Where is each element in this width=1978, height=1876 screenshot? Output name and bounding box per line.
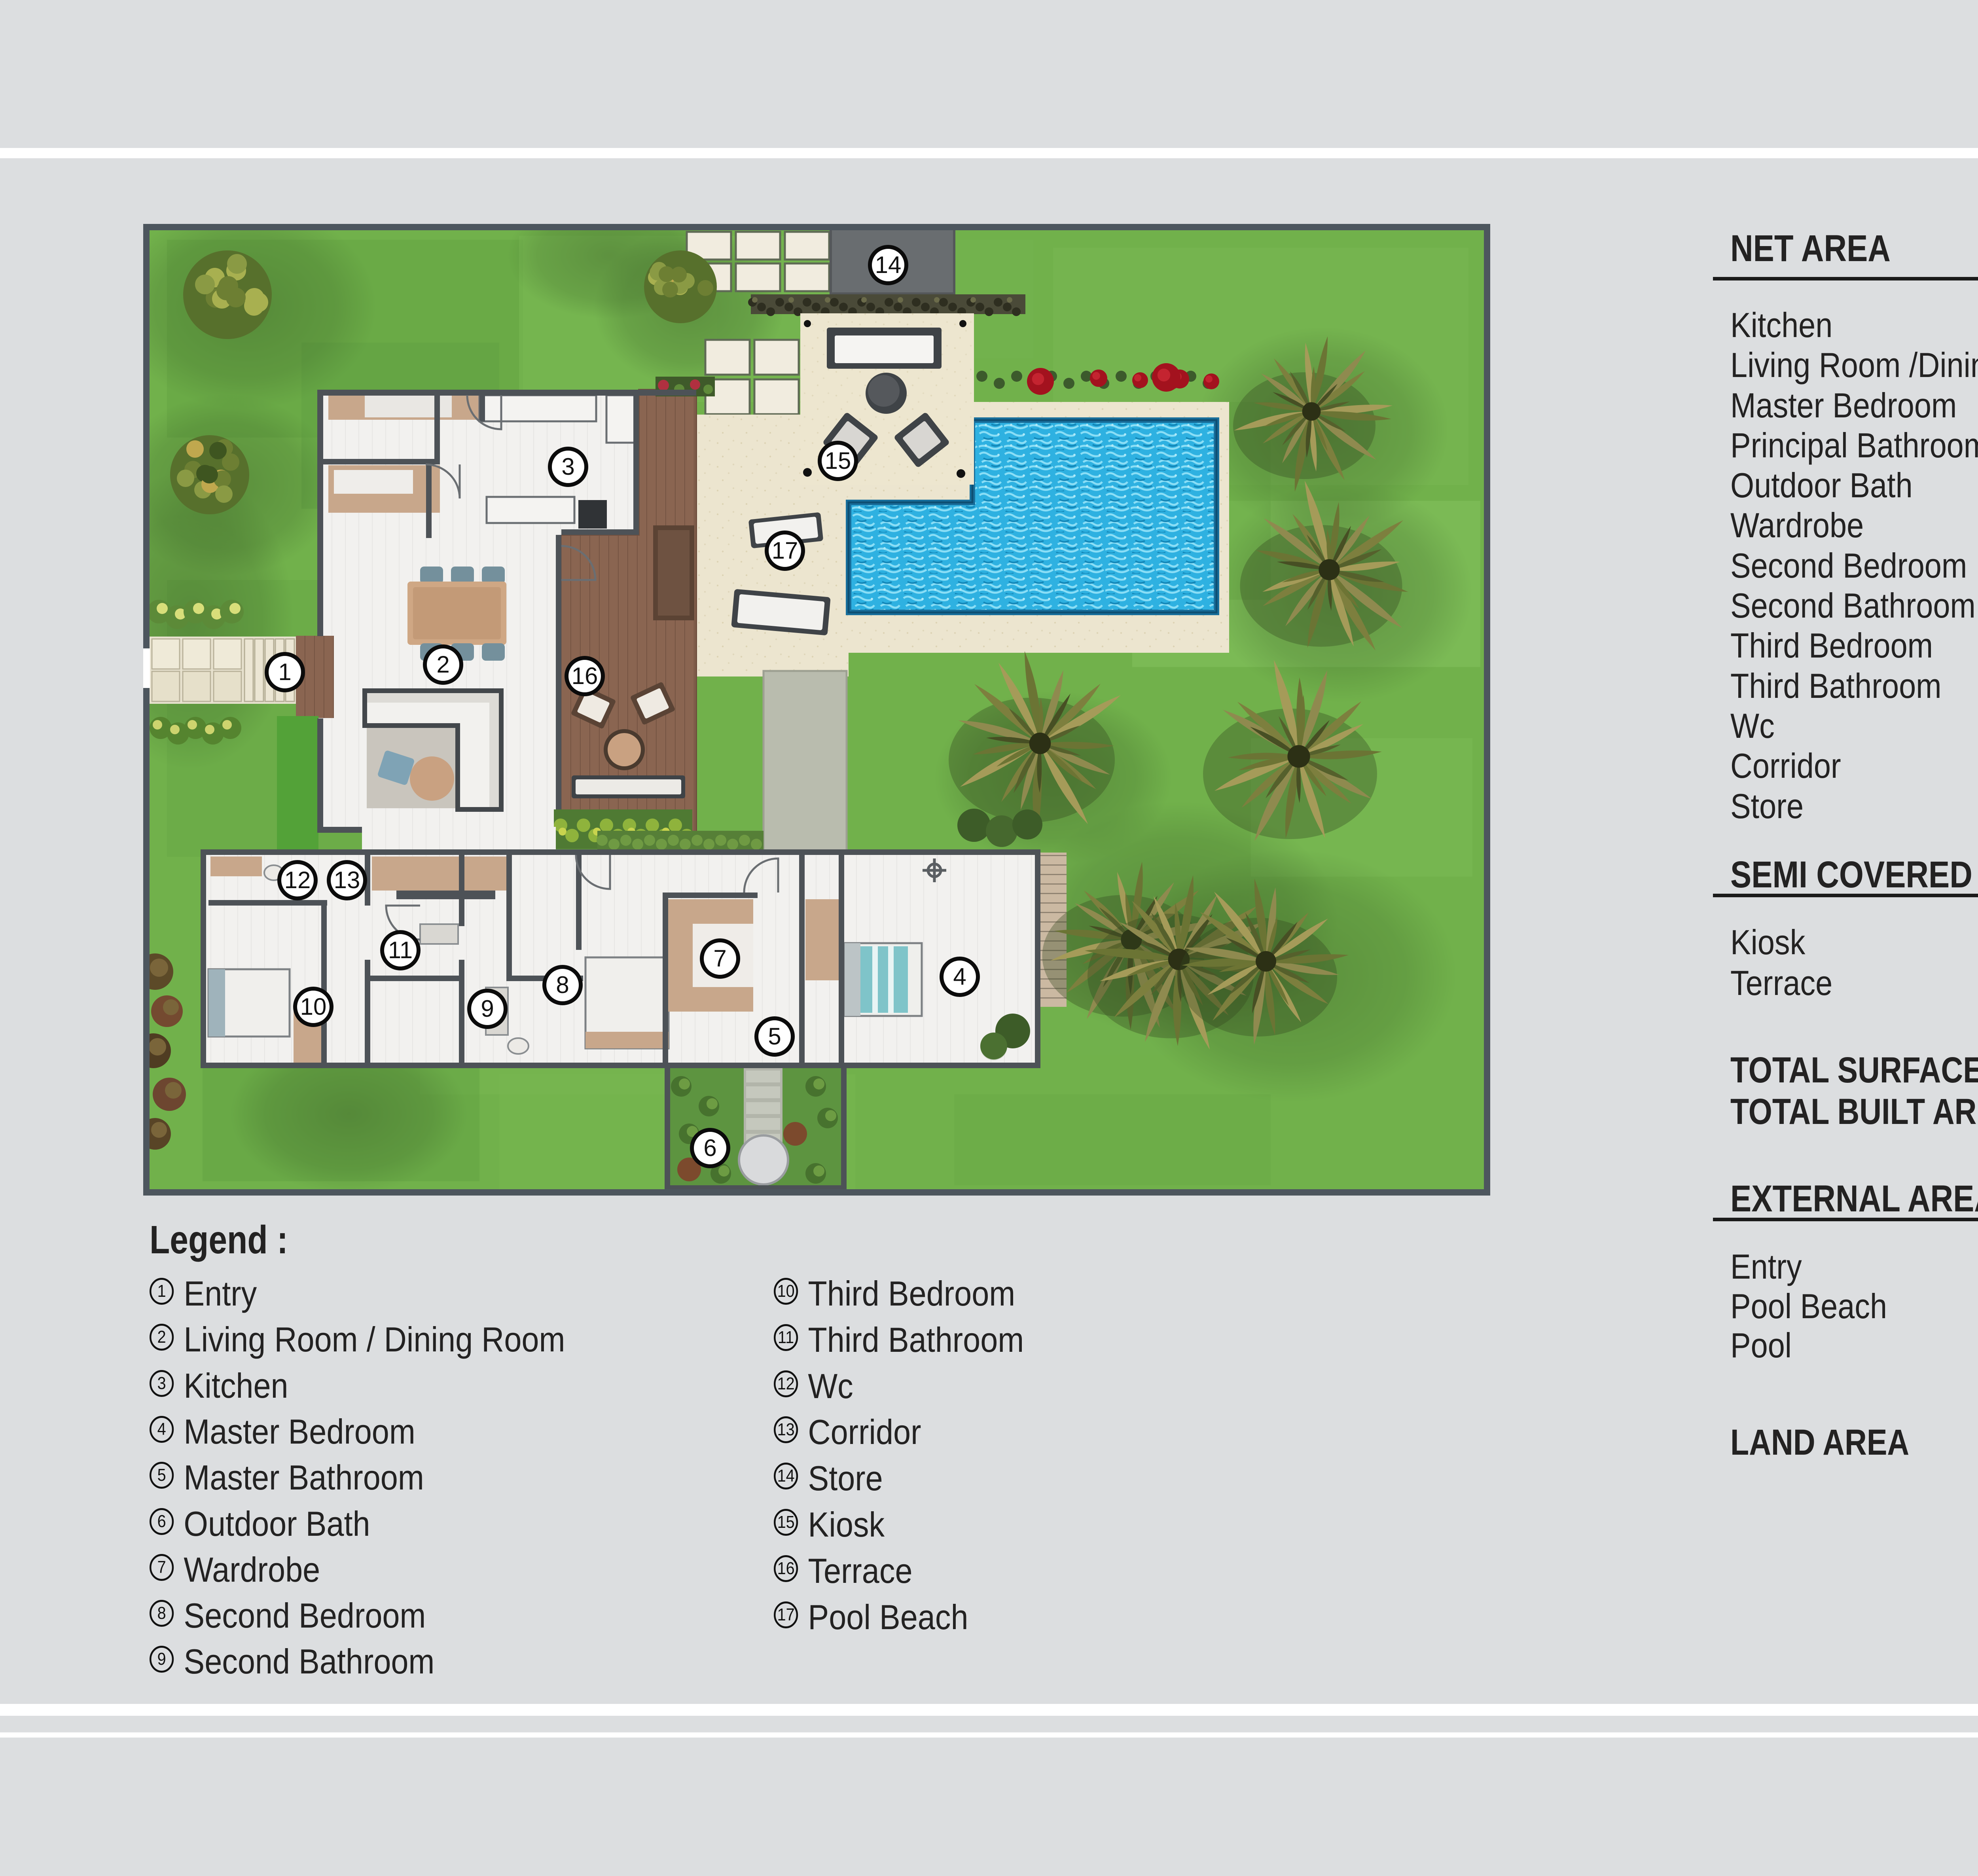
svg-text:2: 2 (436, 651, 449, 678)
svg-text:4: 4 (953, 963, 966, 990)
svg-text:3: 3 (561, 453, 574, 480)
svg-text:9: 9 (481, 995, 494, 1022)
svg-text:15: 15 (825, 447, 851, 474)
svg-text:16: 16 (572, 663, 598, 689)
svg-text:5: 5 (768, 1023, 781, 1050)
svg-text:10: 10 (300, 993, 327, 1020)
svg-text:7: 7 (713, 945, 726, 972)
svg-text:1: 1 (278, 659, 291, 685)
svg-text:11: 11 (388, 937, 413, 963)
svg-text:14: 14 (875, 252, 902, 278)
svg-text:12: 12 (284, 867, 311, 893)
svg-text:13: 13 (334, 867, 360, 893)
svg-text:8: 8 (556, 972, 569, 998)
svg-text:17: 17 (772, 537, 798, 564)
svg-text:6: 6 (703, 1135, 716, 1161)
